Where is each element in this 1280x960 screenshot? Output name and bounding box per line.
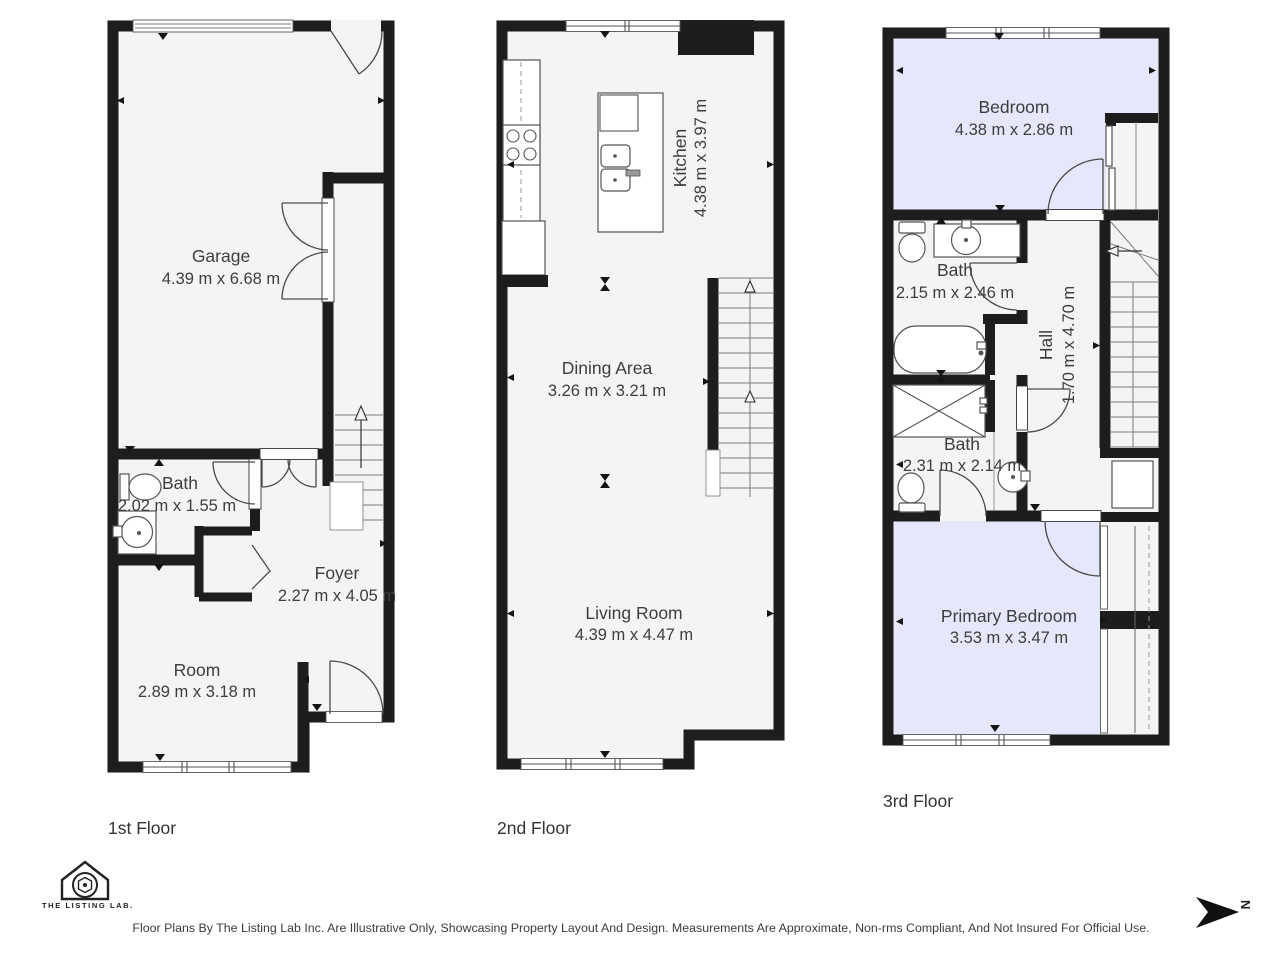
- floor-title-3rd: 3rd Floor: [883, 791, 953, 811]
- room-dims-bedroom: 4.38 m x 2.86 m: [955, 121, 1073, 139]
- room-label-garage: Garage: [192, 246, 250, 266]
- room-label-bath1: Bath: [162, 473, 198, 493]
- window-icon: [566, 21, 680, 32]
- garage-door-icon: [133, 20, 293, 32]
- room-dims-living: 4.39 m x 4.47 m: [575, 626, 693, 644]
- window-icon: [143, 762, 291, 773]
- room-label-primary: Primary Bedroom: [941, 606, 1077, 626]
- sink-icon: [934, 220, 1020, 257]
- storage-closet-icon: [1112, 461, 1153, 508]
- room-dims-dining: 3.26 m x 3.21 m: [548, 382, 666, 400]
- stove-icon: [503, 125, 540, 165]
- room-label-kitchen: Kitchen: [670, 129, 690, 187]
- floor-plan-1st-floor: Garage 4.39 m x 6.68 m Bath 2.02 m x 1.5…: [107, 20, 396, 839]
- room-dims-bath3b: 2.31 m x 2.14 m: [903, 457, 1021, 475]
- brand-logo: THE LISTING LAB.: [42, 862, 134, 910]
- floor-title-1st: 1st Floor: [108, 818, 176, 838]
- floor-plan-drawing: Garage 4.39 m x 6.68 m Bath 2.02 m x 1.5…: [0, 0, 1280, 960]
- bathtub-icon: [894, 326, 986, 373]
- refrigerator-icon: [502, 221, 545, 275]
- room-dims-foyer: 2.27 m x 4.05 m: [278, 587, 396, 605]
- window-icon: [946, 28, 1100, 39]
- window-icon: [521, 759, 663, 770]
- room-dims-bath3a: 2.15 m x 2.46 m: [896, 284, 1014, 302]
- brand-name: THE LISTING LAB.: [42, 901, 134, 910]
- room-label-bedroom: Bedroom: [978, 97, 1049, 117]
- room-label-foyer: Foyer: [315, 563, 360, 583]
- floor-plan-page: Garage 4.39 m x 6.68 m Bath 2.02 m x 1.5…: [0, 0, 1280, 960]
- room-label-bath3a: Bath: [937, 260, 973, 280]
- room-label-hall: Hall: [1036, 330, 1056, 360]
- floor-plan-3rd-floor: Bedroom 4.38 m x 2.86 m Bath 2.15 m x 2.…: [882, 27, 1170, 811]
- sink-icon: [113, 511, 156, 554]
- floor-title-2nd: 2nd Floor: [497, 818, 571, 838]
- room-dims-garage: 4.39 m x 6.68 m: [162, 270, 280, 288]
- room-dims-primary: 3.53 m x 3.47 m: [950, 629, 1068, 647]
- compass-letter: N: [1238, 900, 1253, 909]
- compass-north-icon: N: [1196, 897, 1253, 928]
- kitchen-island-icon: [598, 93, 663, 232]
- house-icon: [62, 862, 108, 899]
- room-label-bath3b: Bath: [944, 434, 980, 454]
- room-dims-bath1: 2.02 m x 1.55 m: [118, 497, 236, 515]
- toilet-icon: [898, 473, 925, 512]
- room-label-dining: Dining Area: [562, 358, 653, 378]
- room-dims-hall: 1.70 m x 4.70 m: [1060, 286, 1078, 404]
- room-label-room: Room: [174, 660, 221, 680]
- primary-bedroom-floor-area: [894, 521, 1101, 735]
- disclaimer-text: Floor Plans By The Listing Lab Inc. Are …: [132, 921, 1149, 935]
- shower-icon: [893, 385, 987, 437]
- toilet-icon: [899, 222, 925, 262]
- room-label-living: Living Room: [585, 603, 682, 623]
- window-icon: [903, 735, 1050, 746]
- floor-plan-2nd-floor: Kitchen 4.38 m x 3.97 m Dining Area 3.26…: [496, 20, 785, 838]
- room-dims-room: 2.89 m x 3.18 m: [138, 683, 256, 701]
- room-dims-kitchen: 4.38 m x 3.97 m: [692, 99, 710, 217]
